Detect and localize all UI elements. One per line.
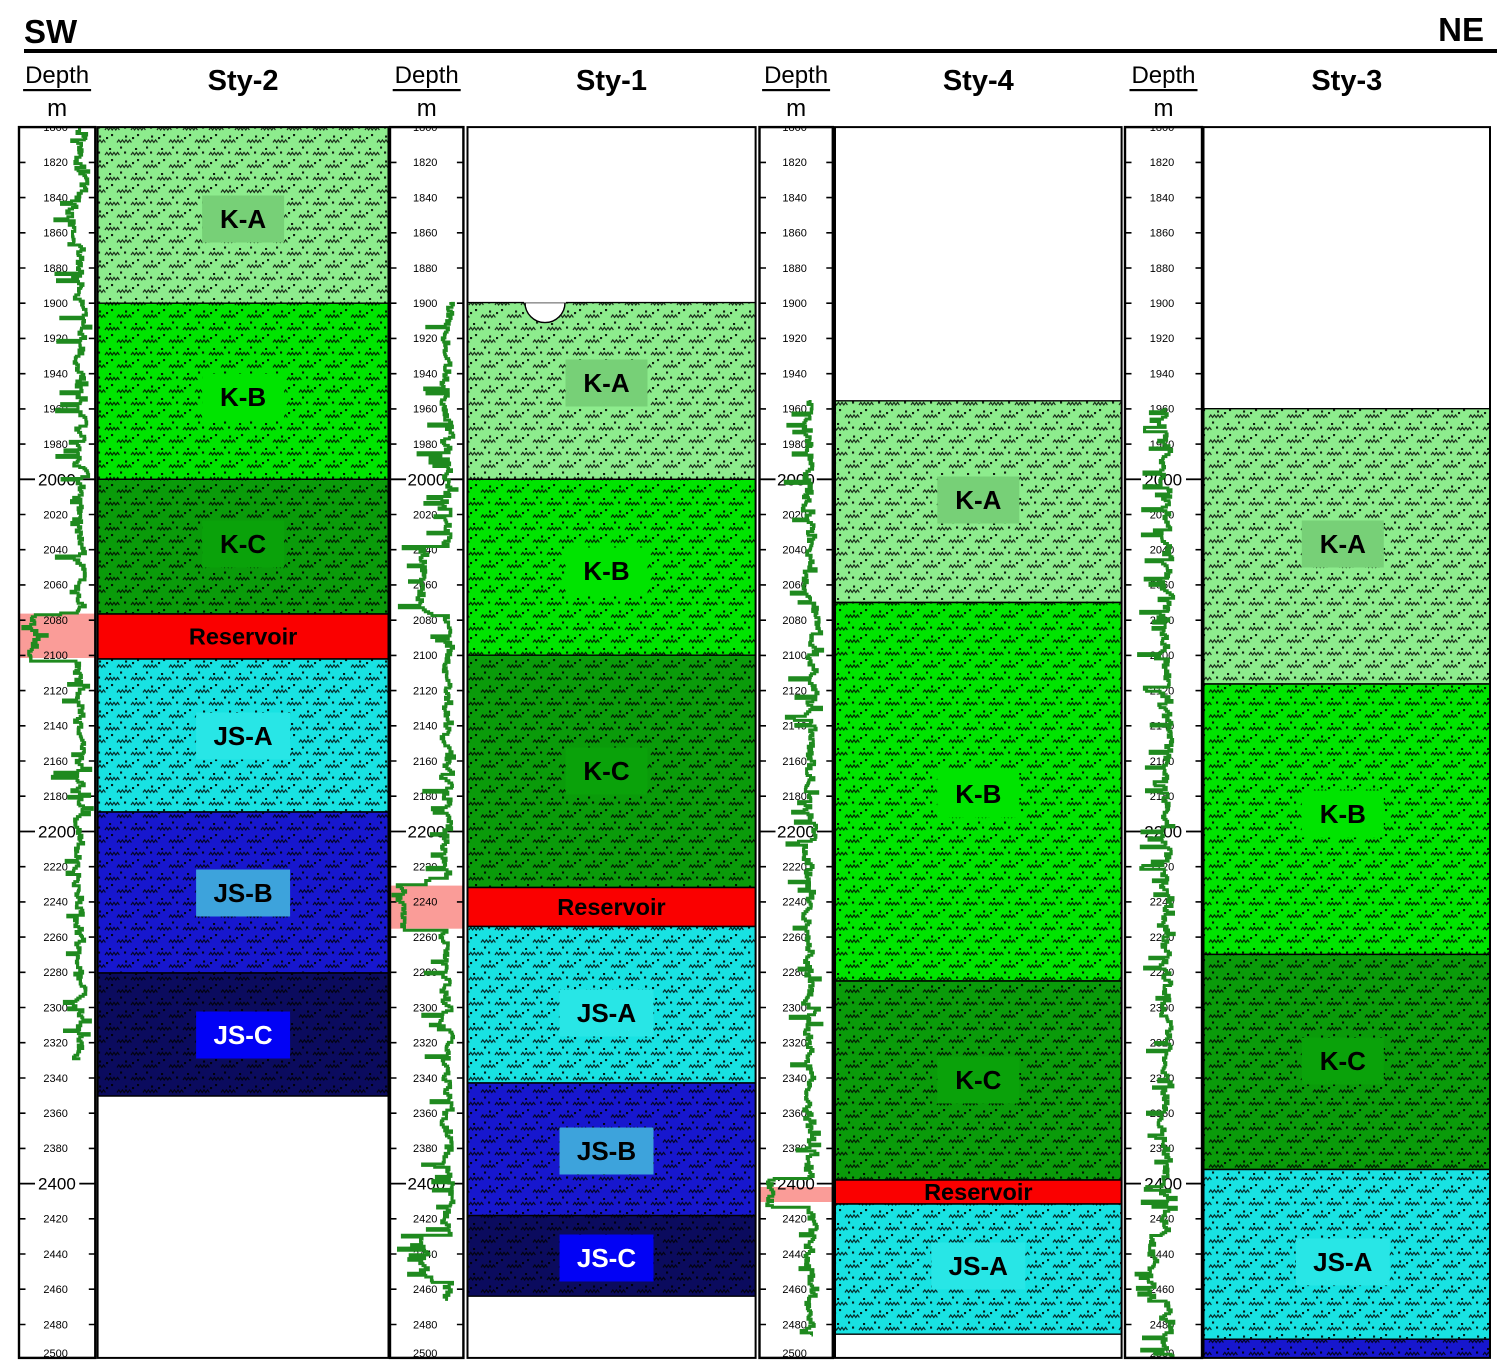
svg-text:Sty-3: Sty-3 <box>1311 65 1382 97</box>
svg-text:1820: 1820 <box>43 157 67 169</box>
svg-text:2480: 2480 <box>43 1319 67 1331</box>
svg-text:2260: 2260 <box>43 932 67 944</box>
svg-text:2100: 2100 <box>782 650 806 662</box>
svg-text:2140: 2140 <box>43 721 67 733</box>
svg-text:2000: 2000 <box>407 470 445 489</box>
svg-text:Reservoir: Reservoir <box>557 894 665 920</box>
svg-text:2420: 2420 <box>782 1214 806 1226</box>
svg-text:JS-C: JS-C <box>213 1020 272 1050</box>
svg-text:2480: 2480 <box>413 1319 437 1331</box>
svg-text:1960: 1960 <box>413 404 437 416</box>
svg-text:2460: 2460 <box>782 1284 806 1296</box>
svg-text:2460: 2460 <box>43 1284 67 1296</box>
svg-text:1920: 1920 <box>782 333 806 345</box>
svg-text:2420: 2420 <box>413 1214 437 1226</box>
svg-text:2400: 2400 <box>38 1175 76 1194</box>
svg-text:2340: 2340 <box>43 1073 67 1085</box>
svg-text:1860: 1860 <box>413 228 437 240</box>
svg-text:m: m <box>417 95 437 122</box>
svg-text:2140: 2140 <box>413 721 437 733</box>
svg-text:K-A: K-A <box>1320 529 1366 559</box>
svg-text:2180: 2180 <box>43 791 67 803</box>
svg-text:2320: 2320 <box>413 1038 437 1050</box>
svg-text:1940: 1940 <box>782 369 806 381</box>
svg-text:2200: 2200 <box>38 823 76 842</box>
svg-text:2460: 2460 <box>413 1284 437 1296</box>
svg-text:1880: 1880 <box>1150 263 1174 275</box>
svg-text:2320: 2320 <box>782 1038 806 1050</box>
svg-text:1900: 1900 <box>413 298 437 310</box>
svg-text:2260: 2260 <box>413 932 437 944</box>
svg-text:Depth: Depth <box>25 62 89 89</box>
svg-text:m: m <box>786 95 806 122</box>
svg-text:2380: 2380 <box>413 1143 437 1155</box>
svg-text:1980: 1980 <box>782 439 806 451</box>
svg-text:m: m <box>47 95 67 122</box>
svg-text:1820: 1820 <box>782 157 806 169</box>
svg-text:2080: 2080 <box>43 615 67 627</box>
svg-text:Reservoir: Reservoir <box>189 624 297 650</box>
svg-text:2160: 2160 <box>413 756 437 768</box>
svg-text:2300: 2300 <box>413 1002 437 1014</box>
svg-text:2220: 2220 <box>43 862 67 874</box>
svg-text:JS-A: JS-A <box>577 998 636 1028</box>
svg-text:K-C: K-C <box>220 529 266 559</box>
svg-text:2040: 2040 <box>782 545 806 557</box>
svg-text:1940: 1940 <box>43 369 67 381</box>
svg-text:2280: 2280 <box>43 967 67 979</box>
svg-text:JS-A: JS-A <box>1313 1247 1372 1277</box>
svg-text:1920: 1920 <box>1150 333 1174 345</box>
svg-text:K-B: K-B <box>1320 799 1366 829</box>
svg-text:2240: 2240 <box>413 897 437 909</box>
svg-text:1840: 1840 <box>1150 192 1174 204</box>
svg-text:Depth: Depth <box>764 62 828 89</box>
svg-text:1820: 1820 <box>1150 157 1174 169</box>
svg-text:2080: 2080 <box>782 615 806 627</box>
svg-text:1900: 1900 <box>43 298 67 310</box>
svg-text:1940: 1940 <box>1150 369 1174 381</box>
svg-text:1840: 1840 <box>413 192 437 204</box>
svg-text:2100: 2100 <box>413 650 437 662</box>
svg-text:1940: 1940 <box>413 369 437 381</box>
svg-text:1880: 1880 <box>413 263 437 275</box>
svg-text:1860: 1860 <box>43 228 67 240</box>
svg-text:2420: 2420 <box>43 1214 67 1226</box>
svg-text:K-B: K-B <box>583 556 629 586</box>
svg-text:2120: 2120 <box>43 685 67 697</box>
svg-text:1860: 1860 <box>782 228 806 240</box>
svg-text:K-C: K-C <box>583 756 629 786</box>
svg-text:2340: 2340 <box>413 1073 437 1085</box>
svg-text:1920: 1920 <box>413 333 437 345</box>
svg-text:K-C: K-C <box>1320 1046 1366 1076</box>
svg-text:2360: 2360 <box>413 1108 437 1120</box>
svg-text:1820: 1820 <box>413 157 437 169</box>
svg-text:1860: 1860 <box>1150 228 1174 240</box>
svg-text:2060: 2060 <box>43 580 67 592</box>
svg-text:2380: 2380 <box>43 1143 67 1155</box>
svg-text:Sty-1: Sty-1 <box>576 65 647 97</box>
svg-text:JS-B: JS-B <box>577 1136 636 1166</box>
svg-text:Depth: Depth <box>1131 62 1195 89</box>
svg-text:2200: 2200 <box>407 823 445 842</box>
svg-text:JS-A: JS-A <box>949 1251 1008 1281</box>
svg-text:K-A: K-A <box>583 368 629 398</box>
svg-text:1880: 1880 <box>782 263 806 275</box>
svg-text:JS-C: JS-C <box>577 1243 636 1273</box>
svg-text:K-A: K-A <box>955 485 1001 515</box>
svg-text:2240: 2240 <box>782 897 806 909</box>
svg-text:K-B: K-B <box>220 382 266 412</box>
svg-text:2240: 2240 <box>43 897 67 909</box>
svg-text:2440: 2440 <box>43 1249 67 1261</box>
svg-text:K-A: K-A <box>220 204 266 234</box>
svg-text:K-B: K-B <box>955 779 1001 809</box>
svg-text:2200: 2200 <box>777 823 815 842</box>
svg-text:2440: 2440 <box>782 1249 806 1261</box>
svg-text:2020: 2020 <box>43 509 67 521</box>
svg-text:m: m <box>1154 95 1174 122</box>
svg-text:2260: 2260 <box>782 932 806 944</box>
svg-text:JS-A: JS-A <box>213 721 272 751</box>
svg-text:1840: 1840 <box>782 192 806 204</box>
svg-text:2160: 2160 <box>43 756 67 768</box>
svg-text:Reservoir: Reservoir <box>924 1179 1032 1205</box>
svg-text:2120: 2120 <box>413 685 437 697</box>
svg-text:2220: 2220 <box>782 862 806 874</box>
svg-text:1980: 1980 <box>413 439 437 451</box>
svg-text:2340: 2340 <box>782 1073 806 1085</box>
svg-text:Depth: Depth <box>395 62 459 89</box>
svg-text:2320: 2320 <box>43 1038 67 1050</box>
svg-text:1900: 1900 <box>1150 298 1174 310</box>
svg-text:2160: 2160 <box>782 756 806 768</box>
svg-text:2360: 2360 <box>43 1108 67 1120</box>
svg-text:Sty-4: Sty-4 <box>943 65 1014 97</box>
svg-text:SW: SW <box>24 13 78 50</box>
svg-text:1900: 1900 <box>782 298 806 310</box>
svg-text:JS-B: JS-B <box>213 878 272 908</box>
svg-text:NE: NE <box>1438 11 1484 48</box>
svg-text:Sty-2: Sty-2 <box>208 65 279 97</box>
svg-text:K-C: K-C <box>955 1065 1001 1095</box>
